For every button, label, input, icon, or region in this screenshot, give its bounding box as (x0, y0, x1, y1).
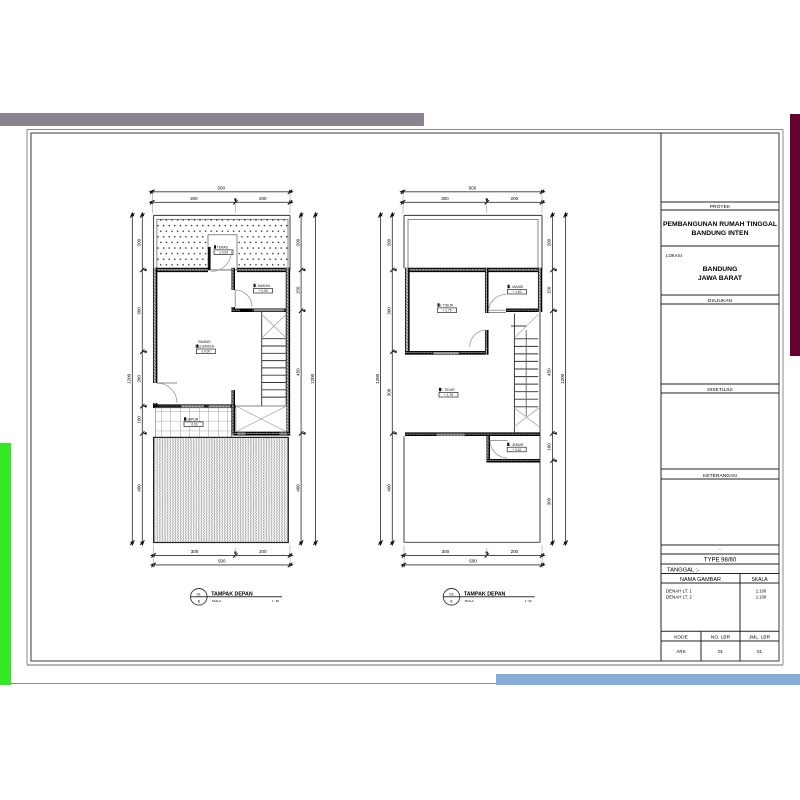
svg-text:1 : 50: 1 : 50 (272, 599, 279, 603)
svg-text:RUANG: RUANG (198, 340, 211, 344)
svg-text:+ 1.60: + 1.60 (513, 290, 522, 294)
svg-text:300: 300 (191, 549, 199, 554)
svg-text:SKALA: SKALA (465, 599, 474, 603)
svg-text:200: 200 (511, 549, 519, 554)
svg-text:200: 200 (547, 238, 552, 246)
svg-text:300: 300 (387, 307, 392, 315)
svg-text:DISETUJUI: DISETUJUI (707, 387, 732, 393)
svg-text:150: 150 (295, 286, 300, 294)
svg-text:300: 300 (387, 388, 392, 396)
svg-text:R. TIDUR: R. TIDUR (440, 388, 455, 392)
svg-text:1200: 1200 (310, 373, 315, 384)
svg-text:DENAH LT. 2: DENAH LT. 2 (666, 595, 692, 600)
svg-text:B: B (198, 600, 200, 604)
svg-text:300: 300 (547, 497, 552, 505)
svg-text:DENAH LT. 1: DENAH LT. 1 (666, 589, 692, 594)
svg-text:1200: 1200 (127, 373, 132, 384)
svg-text:200: 200 (259, 549, 267, 554)
svg-text:KODE: KODE (674, 635, 688, 641)
svg-text:500: 500 (218, 559, 226, 564)
svg-text:± 0.00: ± 0.00 (201, 350, 210, 354)
svg-text:LOKASI: LOKASI (666, 253, 682, 258)
svg-text:01: 01 (449, 592, 453, 596)
svg-text:BANDUNG INTEN: BANDUNG INTEN (691, 230, 748, 237)
svg-text:NO. LBR: NO. LBR (711, 635, 731, 641)
svg-text:± 0.03: ± 0.03 (219, 251, 228, 255)
svg-text:R. JEMUR: R. JEMUR (507, 443, 524, 447)
svg-text:TAMPAK DEPAN: TAMPAK DEPAN (211, 591, 253, 597)
svg-text:500: 500 (469, 185, 477, 190)
svg-text:300: 300 (442, 549, 450, 554)
svg-text:NAMA GAMBAR: NAMA GAMBAR (680, 577, 721, 583)
svg-text:BANDUNG: BANDUNG (703, 266, 738, 273)
svg-text:200: 200 (511, 196, 519, 201)
svg-text:TYPE 98/60: TYPE 98/60 (704, 558, 737, 564)
svg-text:300: 300 (441, 196, 449, 201)
svg-text:DAPUR: DAPUR (186, 418, 198, 422)
svg-text:400: 400 (295, 484, 300, 492)
svg-text:200: 200 (137, 375, 142, 383)
svg-text:400: 400 (387, 484, 392, 492)
svg-text:01: 01 (197, 592, 201, 596)
svg-text:- 0.03: - 0.03 (189, 423, 197, 427)
svg-text:150: 150 (547, 286, 552, 294)
svg-text:200: 200 (295, 238, 300, 246)
svg-text:TERAS: TERAS (217, 246, 229, 250)
svg-text:300: 300 (137, 307, 142, 315)
svg-text:400: 400 (137, 484, 142, 492)
svg-text:B: B (450, 600, 452, 604)
svg-text:200: 200 (259, 196, 267, 201)
svg-text:TAMPAK DEPAN: TAMPAK DEPAN (464, 591, 506, 597)
svg-text:JML. LBR: JML. LBR (749, 635, 771, 641)
svg-text:ARS: ARS (676, 649, 685, 654)
svg-text:100: 100 (547, 443, 552, 451)
svg-text:SKALA: SKALA (751, 577, 768, 583)
svg-text:1200: 1200 (560, 373, 565, 384)
svg-text:450: 450 (547, 368, 552, 376)
svg-text:100: 100 (137, 416, 142, 424)
svg-text:450: 450 (295, 368, 300, 376)
svg-text:01: 01 (757, 649, 763, 654)
svg-text:1 : 50: 1 : 50 (525, 599, 532, 603)
svg-text:1:100: 1:100 (756, 589, 767, 594)
svg-text:R. MAKAN: R. MAKAN (254, 284, 271, 288)
svg-text:+ 1.75: + 1.75 (444, 393, 453, 397)
svg-text:01: 01 (718, 649, 724, 654)
svg-text:200: 200 (137, 238, 142, 246)
svg-text:KETERANGAN: KETERANGAN (703, 473, 737, 479)
svg-text:SKALA: SKALA (212, 599, 221, 603)
svg-text:+ 3.10: + 3.10 (512, 448, 521, 452)
svg-text:+ 0.05: + 0.05 (259, 289, 268, 293)
svg-text:JAWA BARAT: JAWA BARAT (698, 275, 743, 282)
svg-text:TANGGAL :-: TANGGAL :- (667, 568, 699, 574)
svg-text:PROYEK: PROYEK (710, 204, 731, 210)
svg-text:200: 200 (387, 238, 392, 246)
svg-text:1200: 1200 (375, 373, 380, 384)
svg-text:500: 500 (217, 185, 225, 190)
svg-text:R. TIDUR: R. TIDUR (438, 304, 453, 308)
svg-text:PEMBANGUNAN RUMAH TINGGAL: PEMBANGUNAN RUMAH TINGGAL (663, 221, 777, 228)
svg-text:500: 500 (469, 559, 477, 564)
svg-text:DIAJUKAN: DIAJUKAN (708, 298, 733, 304)
svg-text:K. MANDI: K. MANDI (508, 285, 523, 289)
svg-text:+ 1.75: + 1.75 (443, 309, 452, 313)
svg-text:300: 300 (190, 196, 198, 201)
svg-text:1:100: 1:100 (756, 595, 767, 600)
